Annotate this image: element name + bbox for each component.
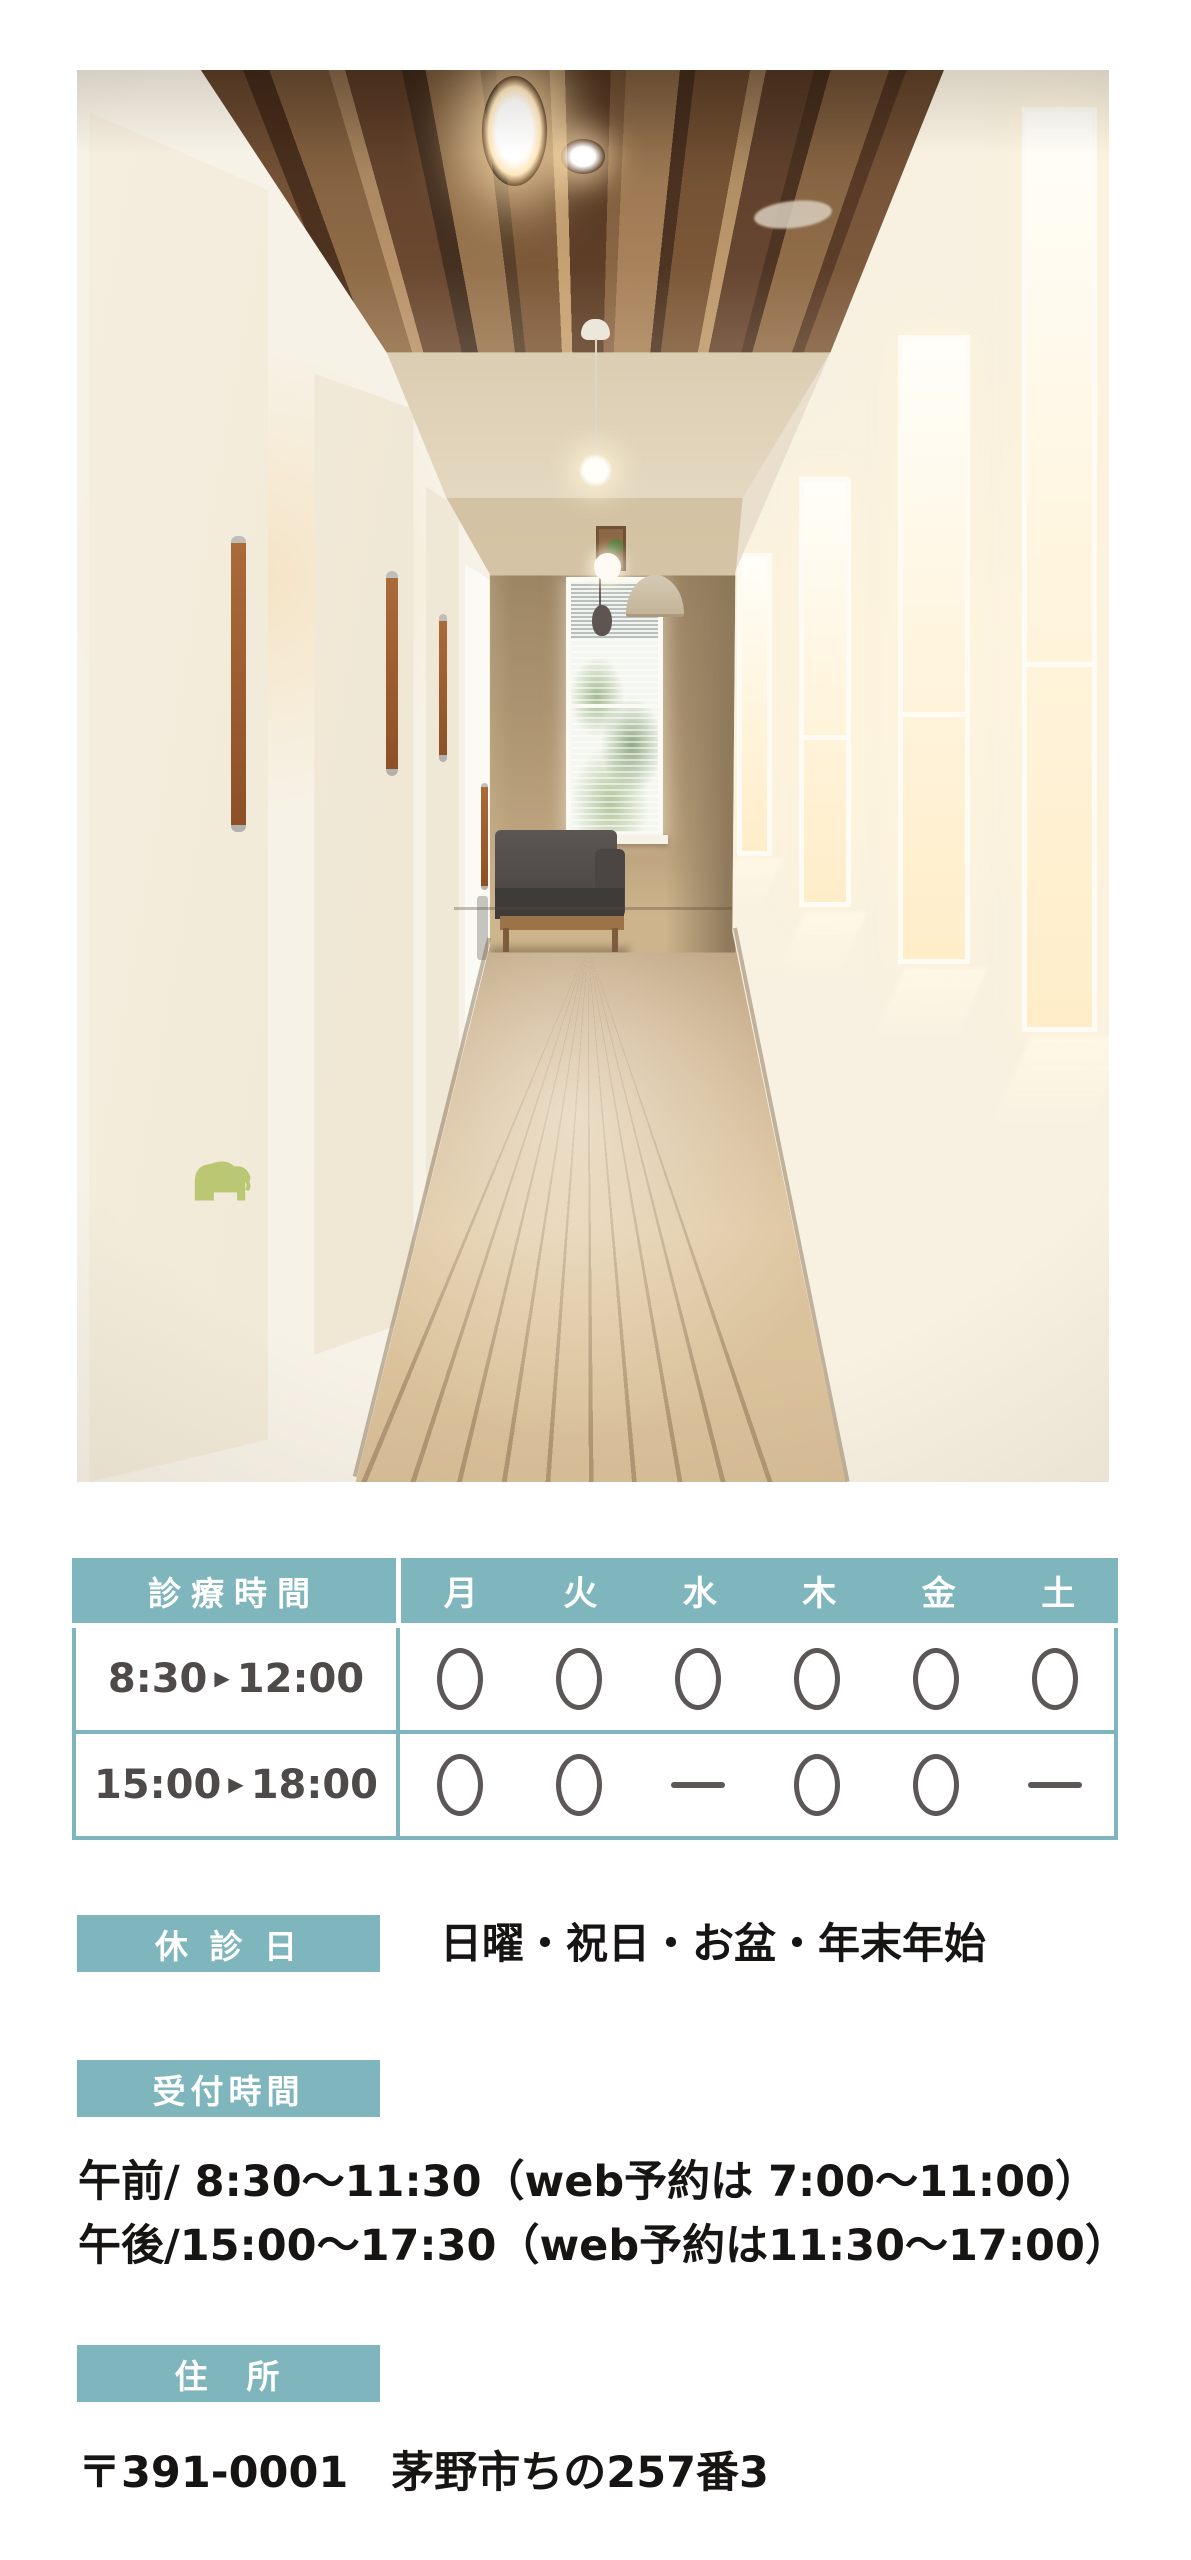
arrow-icon: ▶: [228, 1772, 243, 1796]
reception-hours-text: 午前/ 8:30～11:30（web予約は 7:00～11:00） 午後/15:…: [78, 2150, 1128, 2278]
time-range-label: 15:00▶18:00: [76, 1734, 400, 1836]
schedule-mark-cell: [400, 1628, 519, 1730]
schedule-mark-cell: [519, 1734, 638, 1836]
closed-dash-mark: [1028, 1782, 1082, 1788]
day-label: 木: [760, 1558, 880, 1623]
time-range-label: 8:30▶12:00: [76, 1628, 400, 1730]
table-corner-label: 診療時間: [72, 1558, 396, 1623]
day-header-cells: 月火水木金土: [401, 1558, 1118, 1623]
open-circle-mark: [794, 1754, 840, 1816]
table-header-row: 診療時間 月火水木金土: [72, 1558, 1118, 1623]
day-label: 金: [879, 1558, 999, 1623]
closed-days-text: 日曜・祝日・お盆・年末年始: [440, 1915, 986, 1972]
arrow-icon: ▶: [214, 1666, 229, 1690]
open-circle-mark: [675, 1648, 721, 1710]
day-label: 月: [401, 1558, 521, 1623]
table-body: 8:30▶12:0015:00▶18:00: [72, 1628, 1118, 1840]
schedule-mark-cell: [876, 1628, 995, 1730]
schedule-mark-cell: [519, 1628, 638, 1730]
hallway-photo: [77, 70, 1109, 1482]
schedule-mark-cell: [995, 1734, 1114, 1836]
open-circle-mark: [437, 1648, 483, 1710]
open-circle-mark: [437, 1754, 483, 1816]
table-row: 8:30▶12:00: [76, 1628, 1114, 1730]
open-circle-mark: [913, 1648, 959, 1710]
closed-days-badge: 休 診 日: [77, 1915, 380, 1972]
clinic-info-page: 診療時間 月火水木金土 8:30▶12:0015:00▶18:00 休 診 日 …: [0, 0, 1191, 2560]
schedule-mark-cell: [757, 1628, 876, 1730]
schedule-mark-cell: [638, 1734, 757, 1836]
table-row: 15:00▶18:00: [76, 1730, 1114, 1836]
reception-afternoon-line: 午後/15:00～17:30（web予約は11:30～17:00）: [78, 2214, 1128, 2278]
open-circle-mark: [556, 1754, 602, 1816]
schedule-mark-cell: [757, 1734, 876, 1836]
address-text: 〒391-0001 茅野市ちの257番3: [78, 2438, 769, 2500]
open-circle-mark: [794, 1648, 840, 1710]
day-label: 土: [999, 1558, 1119, 1623]
reception-morning-line: 午前/ 8:30～11:30（web予約は 7:00～11:00）: [78, 2150, 1128, 2214]
address-badge: 住 所: [77, 2345, 380, 2402]
reception-hours-badge: 受付時間: [77, 2060, 380, 2117]
open-circle-mark: [913, 1754, 959, 1816]
day-label: 火: [521, 1558, 641, 1623]
day-label: 水: [640, 1558, 760, 1623]
schedule-mark-cell: [400, 1734, 519, 1836]
open-circle-mark: [556, 1648, 602, 1710]
schedule-mark-cell: [876, 1734, 995, 1836]
schedule-mark-cell: [995, 1628, 1114, 1730]
photo-vignette: [77, 70, 1109, 1482]
schedule-mark-cell: [638, 1628, 757, 1730]
consultation-hours-table: 診療時間 月火水木金土 8:30▶12:0015:00▶18:00: [72, 1558, 1118, 1840]
open-circle-mark: [1032, 1648, 1078, 1710]
closed-dash-mark: [671, 1782, 725, 1788]
